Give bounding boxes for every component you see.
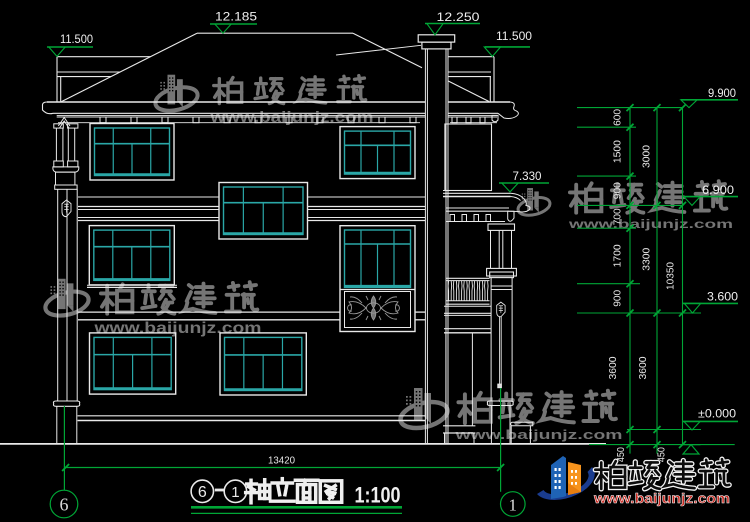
svg-text:11.500: 11.500 [496,31,532,43]
svg-text:1500: 1500 [613,140,624,163]
svg-text:www.baijunjz.com: www.baijunjz.com [454,427,622,442]
svg-text:9.900: 9.900 [708,88,736,100]
svg-text:3300: 3300 [642,247,653,270]
svg-text:900: 900 [613,182,624,199]
svg-text:www.baijunjz.com: www.baijunjz.com [593,490,730,506]
svg-text:1:100: 1:100 [355,483,401,508]
svg-text:1700: 1700 [613,244,624,267]
svg-text:450: 450 [657,447,668,462]
svg-text:3600: 3600 [608,356,619,379]
svg-text:6: 6 [198,484,207,501]
svg-text:7.330: 7.330 [513,171,542,183]
svg-text:3.600: 3.600 [707,292,738,304]
svg-text:10350: 10350 [666,262,677,290]
svg-text:1: 1 [509,496,518,515]
svg-text:900: 900 [613,289,624,306]
svg-text:700: 700 [613,208,624,225]
svg-text:3600: 3600 [638,356,649,379]
svg-text:13420: 13420 [268,456,295,467]
svg-text:12.185: 12.185 [215,12,257,24]
svg-text:±0.000: ±0.000 [698,408,736,420]
svg-text:12.250: 12.250 [437,12,480,24]
svg-text:www.baijunjz.com: www.baijunjz.com [567,217,733,231]
svg-text:600: 600 [613,108,624,125]
svg-text:6.900: 6.900 [702,185,734,197]
svg-text:www.baijunjz.com: www.baijunjz.com [209,109,373,126]
svg-text:www.baijunjz.com: www.baijunjz.com [93,320,261,337]
svg-text:6: 6 [60,495,69,515]
svg-text:11.500: 11.500 [60,34,93,46]
svg-text:1: 1 [231,484,239,501]
svg-text:3000: 3000 [642,145,653,168]
